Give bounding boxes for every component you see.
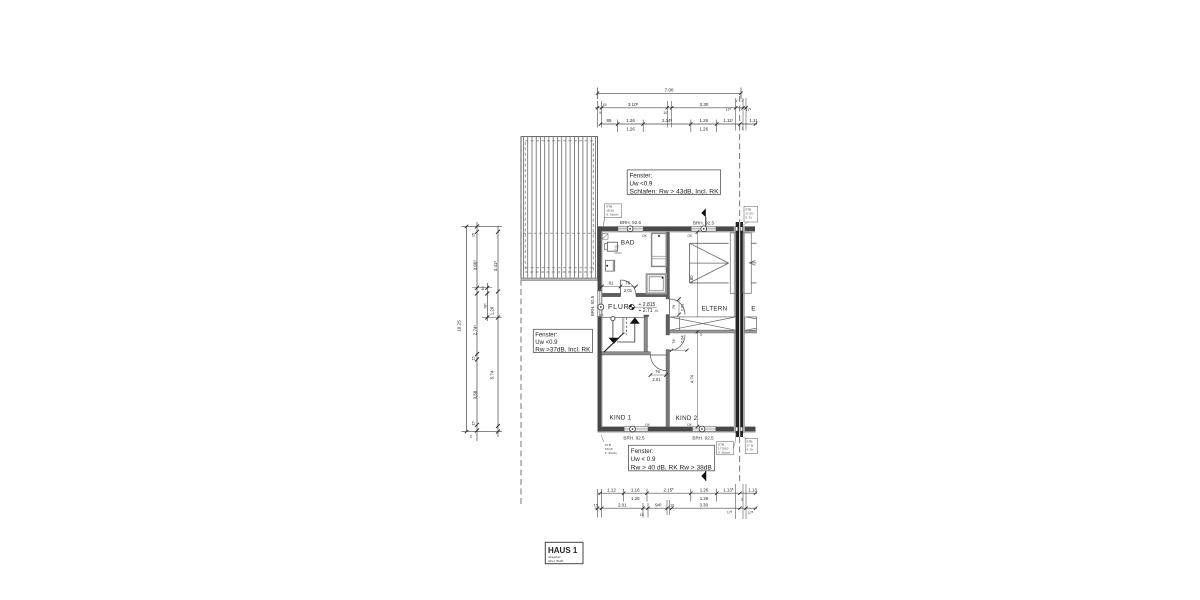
svg-text:1.12: 1.12 <box>607 487 616 492</box>
svg-text:76: 76 <box>671 304 676 309</box>
svg-text:±0: ±0 <box>655 309 659 313</box>
svg-text:Fenster:: Fenster: <box>631 448 654 455</box>
svg-text:15: 15 <box>472 357 476 361</box>
svg-text:3.30: 3.30 <box>700 102 709 107</box>
svg-text:4.74: 4.74 <box>689 374 694 383</box>
svg-text:3: 3 <box>741 497 743 501</box>
svg-text:Uw <0.9: Uw <0.9 <box>630 181 653 188</box>
svg-text:10: 10 <box>670 503 674 507</box>
svg-text:1.26: 1.26 <box>489 306 494 315</box>
svg-text:BAD: BAD <box>621 239 635 246</box>
svg-text:10: 10 <box>481 287 485 291</box>
svg-text:OK: OK <box>642 234 648 238</box>
svg-text:BRH. 92.5: BRH. 92.5 <box>692 436 714 441</box>
svg-text:85: 85 <box>607 118 612 123</box>
svg-text:OK: OK <box>645 423 651 427</box>
svg-text:Fenster:: Fenster: <box>535 333 557 339</box>
svg-text:Fenster:: Fenster: <box>630 173 653 180</box>
svg-text:3.30: 3.30 <box>700 502 709 507</box>
svg-text:15: 15 <box>640 513 644 517</box>
svg-text:Ehel. Wolff: Ehel. Wolff <box>549 559 564 563</box>
svg-text:Uw <0.9: Uw <0.9 <box>535 340 558 346</box>
svg-text:14: 14 <box>469 435 473 439</box>
svg-text:92: 92 <box>699 333 703 337</box>
svg-text:9. St: 9. St <box>745 216 752 220</box>
svg-text:2.01: 2.01 <box>652 377 661 382</box>
svg-text:1.26: 1.26 <box>700 118 709 123</box>
svg-text:2.01: 2.01 <box>618 502 627 507</box>
svg-text:15: 15 <box>594 503 598 507</box>
svg-text:FLUR: FLUR <box>608 304 629 311</box>
svg-text:1.26: 1.26 <box>700 127 709 132</box>
svg-text:+ 2.815: + 2.815 <box>639 302 656 308</box>
svg-text:15: 15 <box>603 103 607 107</box>
svg-text:2.74⁵: 2.74⁵ <box>472 325 477 336</box>
svg-text:1.13: 1.13 <box>748 487 757 492</box>
svg-text:7.00: 7.00 <box>665 87 674 92</box>
svg-text:9. Stütze: 9. Stütze <box>606 213 618 217</box>
svg-text:9. St: 9. St <box>746 448 753 452</box>
svg-text:15: 15 <box>472 422 476 426</box>
svg-text:OK: OK <box>687 423 693 427</box>
svg-text:76: 76 <box>671 339 676 344</box>
svg-text:9: 9 <box>599 111 601 115</box>
svg-text:76: 76 <box>625 281 630 286</box>
svg-text:1.26: 1.26 <box>626 127 635 132</box>
svg-text:1.26: 1.26 <box>700 496 709 501</box>
svg-text:2.01: 2.01 <box>624 288 633 293</box>
svg-text:15: 15 <box>472 233 476 237</box>
svg-text:BRH. 92.5: BRH. 92.5 <box>620 220 642 225</box>
svg-text:Rw >37dB, Incl. RK: Rw >37dB, Incl. RK <box>535 348 590 354</box>
svg-text:5.74: 5.74 <box>489 370 494 379</box>
svg-text:9. Stütze: 9. Stütze <box>718 451 730 455</box>
svg-text:KIND 2: KIND 2 <box>676 415 698 422</box>
svg-text:Rw > 40 dB, RK Rw > 38dB: Rw > 40 dB, RK Rw > 38dB <box>631 464 712 471</box>
svg-text:8,5: 8,5 <box>600 313 604 317</box>
svg-text:3.06⁵: 3.06⁵ <box>472 260 477 271</box>
svg-text:2.04: 2.04 <box>680 335 685 344</box>
svg-text:+ 2.71: + 2.71 <box>639 308 653 314</box>
svg-text:A0: A0 <box>614 248 618 252</box>
svg-text:3.58: 3.58 <box>472 390 477 399</box>
svg-text:E: E <box>751 306 756 313</box>
svg-text:3: 3 <box>742 127 744 131</box>
svg-text:9. Stütze: 9. Stütze <box>605 451 617 455</box>
svg-text:2.01: 2.01 <box>680 303 685 312</box>
svg-text:Uw < 0.9: Uw < 0.9 <box>631 456 656 463</box>
svg-text:BRH. 92.5: BRH. 92.5 <box>623 436 645 441</box>
svg-text:10: 10 <box>663 111 667 115</box>
svg-text:78⁵: 78⁵ <box>483 303 487 309</box>
svg-text:ELTERN: ELTERN <box>702 306 728 313</box>
svg-text:OK: OK <box>687 234 693 238</box>
svg-text:76: 76 <box>655 369 660 374</box>
svg-text:1.26: 1.26 <box>700 487 709 492</box>
svg-text:12026: 12026 <box>614 251 622 255</box>
svg-text:81: 81 <box>609 281 614 286</box>
svg-text:BRH. 92.5: BRH. 92.5 <box>693 220 715 225</box>
svg-text:BRH. 92.5: BRH. 92.5 <box>590 295 595 316</box>
svg-text:KIND 1: KIND 1 <box>610 415 632 422</box>
svg-text:Schlafen: Rw > 43dB, Incl. RK: Schlafen: Rw > 43dB, Incl. RK <box>630 188 720 195</box>
svg-text:10.25: 10.25 <box>456 320 461 332</box>
svg-text:1.11: 1.11 <box>749 118 758 123</box>
svg-text:3.41⁵: 3.41⁵ <box>493 261 498 272</box>
svg-text:1.26: 1.26 <box>626 118 635 123</box>
svg-text:1.26: 1.26 <box>631 496 640 501</box>
svg-text:1.16: 1.16 <box>631 487 640 492</box>
